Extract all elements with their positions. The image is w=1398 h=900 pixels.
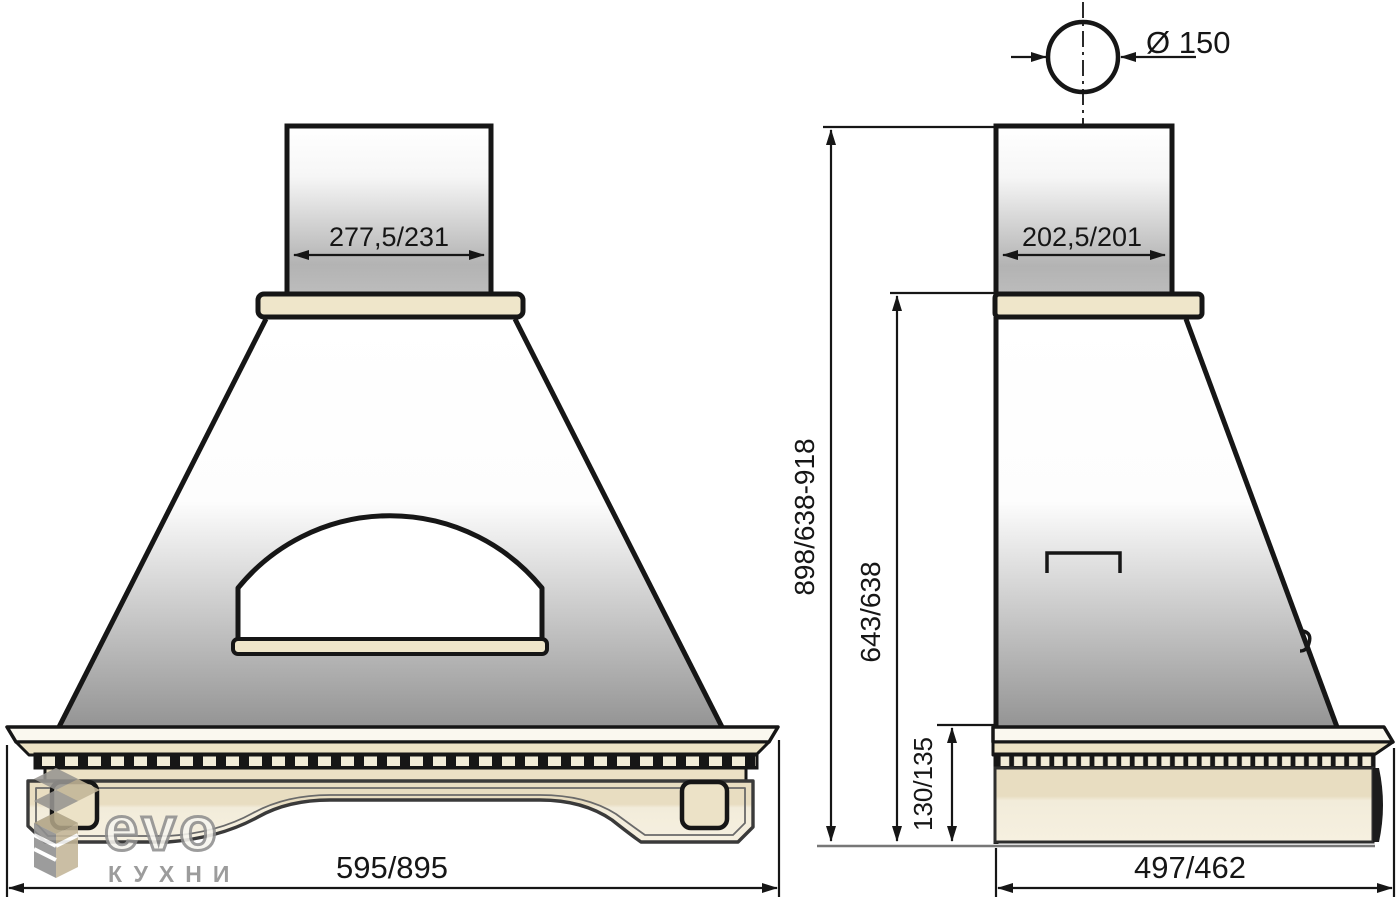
front-cornice-dentils <box>35 754 757 768</box>
side-cornice-top-band <box>993 727 1393 742</box>
vertical-dimensions: 898/638-918 643/638 130/135 <box>789 127 994 841</box>
front-collar <box>258 294 523 317</box>
hood-drawing: 277,5/231 595/895 Ø 150 <box>0 0 1398 900</box>
logo-brand-text: evo <box>104 795 220 864</box>
front-chimney <box>287 126 491 295</box>
flue-diameter-label: Ø 150 <box>1146 25 1230 60</box>
side-chimney <box>996 126 1172 297</box>
front-cornice-frieze <box>45 768 746 781</box>
side-view: Ø 150 202,5/201 497/462 <box>817 2 1394 897</box>
body-height-label: 643/638 <box>855 561 886 662</box>
side-collar <box>995 294 1202 317</box>
technical-drawing-canvas: 277,5/231 595/895 Ø 150 <box>0 0 1398 900</box>
side-depth-dim-label: 497/462 <box>1134 850 1246 885</box>
front-view: 277,5/231 595/895 <box>7 126 779 897</box>
side-cornice-dentils <box>996 754 1374 768</box>
side-body <box>995 317 1337 727</box>
side-chimney-dim-label: 202,5/201 <box>1022 222 1142 252</box>
front-width-dim-label: 595/895 <box>336 850 448 885</box>
side-valance-edge-profile <box>1373 768 1383 842</box>
logo-subtitle-text: КУХНИ <box>108 861 240 887</box>
front-cornice-top-band <box>7 727 778 742</box>
front-arch-sill <box>233 639 547 654</box>
front-chimney-dim-label: 277,5/231 <box>329 222 449 252</box>
front-right-handle <box>682 782 727 828</box>
cornice-height-label: 130/135 <box>908 737 938 831</box>
side-cornice-panel <box>995 768 1373 842</box>
total-height-label: 898/638-918 <box>789 438 820 595</box>
